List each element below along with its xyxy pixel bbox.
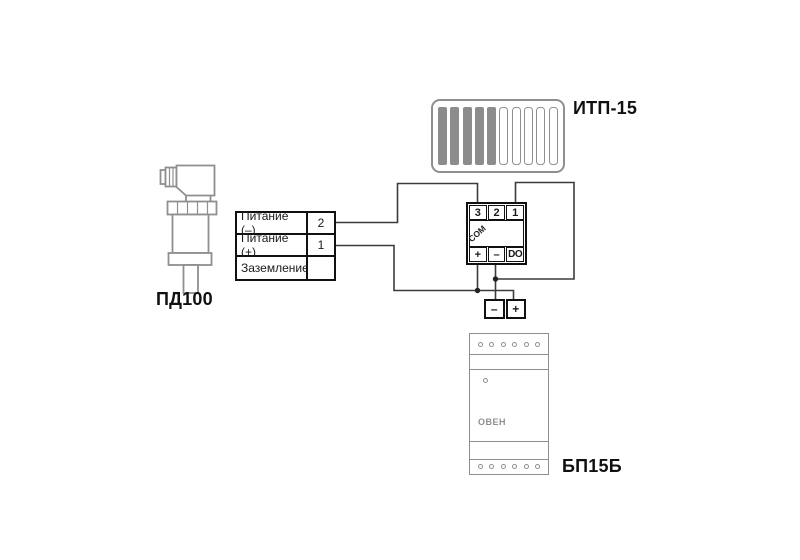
terminal-dot: [524, 342, 529, 347]
pd100-row-power-plus-terminal: 1: [308, 235, 334, 257]
junction-dot: [475, 288, 480, 293]
display-segment: [463, 107, 472, 165]
pd100-row-ground-terminal: [308, 257, 334, 279]
pd100-terminal-table: Питание (–) 2 Питание (+) 1 Заземление: [235, 211, 336, 281]
terminal-dot: [535, 342, 540, 347]
terminal-dot: [489, 342, 494, 347]
pd100-row-ground-label: Заземление: [237, 257, 308, 279]
terminal-row-top: 3 2 1: [469, 205, 524, 220]
sensor-connector-body: [177, 166, 215, 196]
power-output-minus: –: [484, 299, 505, 319]
power-output-block: – +: [484, 299, 526, 319]
pd100-label: ПД100: [156, 289, 213, 310]
terminal-com-band: COM: [469, 220, 524, 247]
itp15-display: [431, 99, 565, 173]
wire-power-minus-to-terminal-3: [333, 184, 478, 223]
terminal-2: 2: [488, 205, 506, 220]
terminal-3: 3: [469, 205, 487, 220]
bp15b-bottom-terminals: [470, 464, 548, 469]
bp15b-divider: [470, 354, 548, 355]
pd100-row-power-plus-label: Питание (+): [237, 235, 308, 257]
bp15b-top-terminals: [470, 342, 548, 347]
terminal-1: 1: [506, 205, 524, 220]
itp15-terminal-block: 3 2 1 COM + – DO: [466, 202, 527, 265]
bp15b-led-indicator: [483, 378, 488, 383]
bp15b-owen-logo: ОВЕН: [478, 417, 506, 427]
pd100-row-power-minus-terminal: 2: [308, 213, 334, 235]
bp15b-divider: [470, 459, 548, 460]
power-output-plus: +: [506, 299, 527, 319]
display-segment: [536, 107, 545, 165]
display-segment: [524, 107, 533, 165]
terminal-dot: [501, 342, 506, 347]
terminal-do: DO: [506, 247, 524, 262]
terminal-dot: [524, 464, 529, 469]
terminal-dot: [478, 464, 483, 469]
junction-dot: [493, 276, 498, 281]
display-segment: [487, 107, 496, 165]
display-segment: [549, 107, 558, 165]
terminal-row-bottom: + – DO: [469, 247, 524, 262]
terminal-dot: [535, 464, 540, 469]
terminal-dot: [489, 464, 494, 469]
display-segment: [499, 107, 508, 165]
bp15b-divider: [470, 441, 548, 442]
sensor-lower-hex: [169, 253, 212, 265]
bp15b-divider: [470, 369, 548, 370]
com-label: COM: [466, 223, 487, 244]
display-segment: [450, 107, 459, 165]
terminal-minus: –: [488, 247, 506, 262]
terminal-dot: [512, 464, 517, 469]
bp15b-device: ОВЕН: [469, 333, 549, 475]
display-segment: [512, 107, 521, 165]
display-segment: [438, 107, 447, 165]
sensor-cylinder: [173, 215, 209, 254]
terminal-dot: [512, 342, 517, 347]
wiring-diagram: ПД100 Питание (–) 2 Питание (+) 1 Заземл…: [0, 0, 800, 560]
display-segment: [475, 107, 484, 165]
sensor-plug-ribs: [166, 168, 177, 187]
terminal-dot: [478, 342, 483, 347]
sensor-hex-nut: [168, 202, 217, 215]
terminal-dot: [501, 464, 506, 469]
pd100-sensor-graphic: [150, 162, 230, 297]
wires-layer: [0, 0, 800, 560]
terminal-plus: +: [469, 247, 487, 262]
itp15-label: ИТП-15: [573, 98, 637, 119]
bp15b-label: БП15Б: [562, 456, 622, 477]
